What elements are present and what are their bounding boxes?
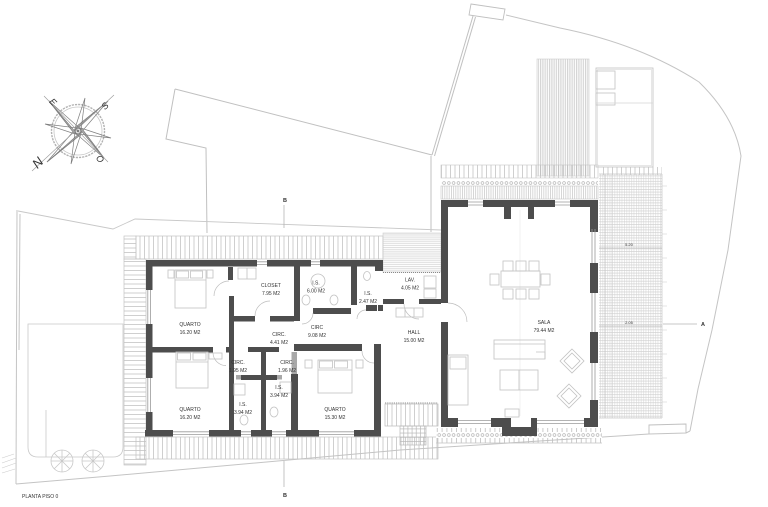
svg-text:4.41 M2: 4.41 M2 (270, 340, 288, 346)
svg-text:16.20 M2: 16.20 M2 (180, 415, 201, 421)
svg-text:CIRC.: CIRC. (231, 360, 245, 366)
svg-text:QUARTO: QUARTO (179, 407, 200, 413)
svg-text:2.47 M2: 2.47 M2 (359, 299, 377, 305)
svg-text:79.44 M2: 79.44 M2 (534, 328, 555, 334)
svg-text:B: B (283, 198, 287, 204)
svg-text:I.S.: I.S. (364, 291, 372, 297)
svg-text:3.94 M2: 3.94 M2 (270, 393, 288, 399)
svg-text:2.05: 2.05 (625, 320, 634, 325)
svg-text:5.20: 5.20 (625, 242, 634, 247)
svg-text:QUARTO: QUARTO (324, 407, 345, 413)
svg-text:A: A (701, 322, 705, 328)
svg-text:7.95 M2: 7.95 M2 (262, 291, 280, 297)
svg-text:6.00 M2: 6.00 M2 (307, 289, 325, 295)
svg-text:4.05 M2: 4.05 M2 (401, 286, 419, 292)
svg-text:QUARTO: QUARTO (179, 322, 200, 328)
svg-text:SALA: SALA (538, 320, 551, 326)
svg-text:CLOSET: CLOSET (261, 283, 281, 289)
svg-text:1.96 M2: 1.96 M2 (278, 368, 296, 374)
svg-text:CIRC: CIRC (311, 325, 324, 331)
svg-text:I.S.: I.S. (239, 402, 247, 408)
svg-text:CIRC.: CIRC. (272, 332, 286, 338)
svg-text:15.30 M2: 15.30 M2 (325, 415, 346, 421)
svg-text:PLANTA PISO 0: PLANTA PISO 0 (22, 494, 59, 500)
svg-text:B: B (283, 493, 287, 499)
svg-text:HALL: HALL (408, 330, 421, 336)
svg-text:15.00 M2: 15.00 M2 (404, 338, 425, 344)
svg-text:CIRC.: CIRC. (280, 360, 294, 366)
svg-text:9.08 M2: 9.08 M2 (308, 333, 326, 339)
svg-text:3.94 M2: 3.94 M2 (234, 410, 252, 416)
svg-text:16.20 M2: 16.20 M2 (180, 330, 201, 336)
svg-text:LAV.: LAV. (405, 278, 415, 284)
svg-text:I.S.: I.S. (312, 281, 320, 287)
svg-text:1.95 M2: 1.95 M2 (229, 368, 247, 374)
svg-text:I.S.: I.S. (275, 385, 283, 391)
